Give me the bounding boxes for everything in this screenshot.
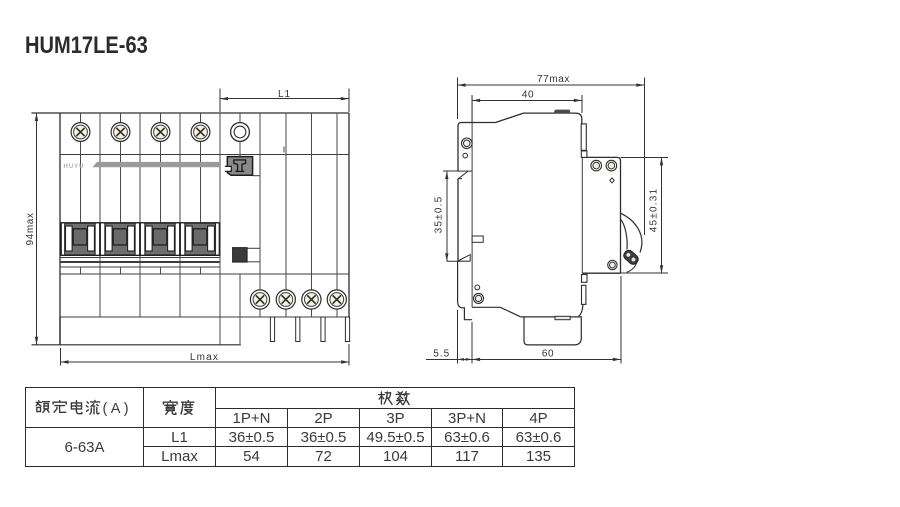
svg-text:Lmax: Lmax <box>190 352 219 363</box>
svg-text:94max: 94max <box>25 212 36 245</box>
svg-text:60: 60 <box>542 348 554 359</box>
svg-text:HUYU: HUYU <box>64 164 85 170</box>
svg-text:5.5: 5.5 <box>433 348 450 359</box>
svg-text:45±0.31: 45±0.31 <box>649 188 660 232</box>
svg-text:35±0.5: 35±0.5 <box>434 196 445 234</box>
svg-text:77max: 77max <box>537 74 570 85</box>
svg-text:(A): (A) <box>102 401 132 416</box>
svg-text:40: 40 <box>522 90 534 101</box>
svg-text:L1: L1 <box>278 89 291 100</box>
